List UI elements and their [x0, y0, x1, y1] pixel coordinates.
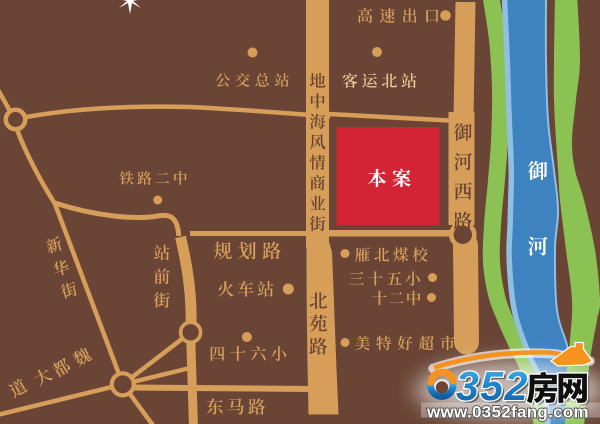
svg-text:www.0352fang.com: www.0352fang.com — [426, 403, 589, 422]
